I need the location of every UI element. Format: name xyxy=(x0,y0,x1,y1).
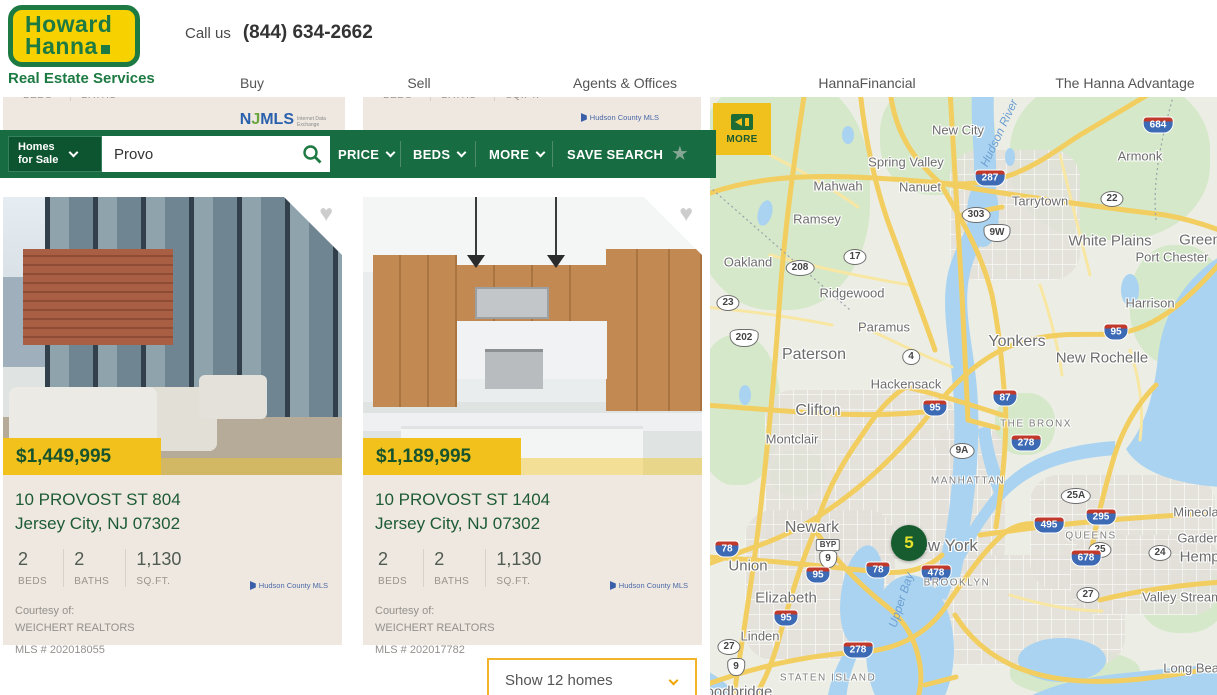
map-label-95: 95 xyxy=(806,568,829,583)
listing-address-line1[interactable]: 10 PROVOST ST 804 xyxy=(15,488,330,512)
njmls-logo: NJMLS Internet Data Exchange xyxy=(240,112,331,128)
price-badge: $1,189,995 xyxy=(363,438,521,475)
map-label-queens: QUEENS xyxy=(1065,531,1116,542)
map-label-staten-island: STATEN ISLAND xyxy=(780,673,876,684)
listing-address-line2[interactable]: Jersey City, NJ 07302 xyxy=(15,512,330,536)
divider xyxy=(475,141,476,167)
favorite-corner xyxy=(644,197,702,255)
map-label-24: 24 xyxy=(1148,545,1171,561)
logo-line2: Hanna xyxy=(25,36,135,58)
map-label-upper-bay: Upper Bay xyxy=(886,571,917,629)
map-label-paterson: Paterson xyxy=(782,346,846,364)
mls-number: MLS # 202018055 xyxy=(15,644,330,656)
nav-hanna-advantage[interactable]: The Hanna Advantage xyxy=(1055,75,1194,91)
partial-stat-label: BEDS xyxy=(373,97,430,101)
nav-buy[interactable]: Buy xyxy=(240,75,264,91)
map-label-union: Union xyxy=(728,558,767,575)
courtesy-label: Courtesy of: xyxy=(375,603,690,620)
map[interactable]: New CitySpring ValleyArmonk684MahwahNanu… xyxy=(710,95,1217,695)
filter-beds[interactable]: BEDS xyxy=(413,130,465,178)
map-label-202: 202 xyxy=(730,329,759,347)
map-label-armonk: Armonk xyxy=(1118,149,1163,164)
mls-flag-icon xyxy=(581,113,587,122)
map-label-port-chester: Port Chester xyxy=(1136,250,1209,265)
photo-shape xyxy=(373,255,457,407)
map-label-208: 208 xyxy=(786,260,815,276)
map-labels: New CitySpring ValleyArmonk684MahwahNanu… xyxy=(710,95,1217,695)
courtesy-name: WEICHERT REALTORS xyxy=(15,620,330,637)
show-homes-label: Show 12 homes xyxy=(505,672,613,689)
listing-info: 10 PROVOST ST 1404 Jersey City, NJ 07302… xyxy=(363,475,702,645)
partial-listing-card[interactable]: BEDS BATHS SQ.FT. Hudson County MLS xyxy=(363,97,701,130)
chevron-down-icon xyxy=(69,148,79,158)
map-label-hempstead: Hempstead xyxy=(1180,549,1217,566)
favorite-corner xyxy=(284,197,342,255)
map-label-9w: 9W xyxy=(984,224,1011,242)
listing-type-line2: for Sale xyxy=(18,154,58,167)
map-label-303: 303 xyxy=(962,207,991,223)
map-label-678: 678 xyxy=(1072,551,1101,566)
sqft-label: SQ.FT. xyxy=(496,576,541,587)
map-label-clifton: Clifton xyxy=(795,402,840,420)
chevron-down-icon xyxy=(457,147,467,157)
map-label-the-bronx: THE BRONX xyxy=(1000,419,1072,430)
sqft-value: 1,130 xyxy=(136,549,181,570)
map-label-brooklyn: BROOKLYN xyxy=(924,578,991,589)
favorite-heart-icon[interactable]: ♥ xyxy=(679,202,693,225)
map-label-9: 9 xyxy=(819,550,837,568)
photo-shape xyxy=(475,197,477,255)
map-label-4: 4 xyxy=(902,349,920,365)
listing-photo[interactable]: $1,189,995 ♥ xyxy=(363,197,702,475)
nav-hannafinancial[interactable]: HannaFinancial xyxy=(818,75,915,91)
beds-label: BEDS xyxy=(18,576,47,587)
map-label-manhattan: MANHATTAN xyxy=(931,476,1005,487)
chevron-down-icon xyxy=(669,676,679,686)
listing-info: 10 PROVOST ST 804 Jersey City, NJ 07302 … xyxy=(3,475,342,645)
photo-shape xyxy=(475,287,549,319)
partial-listing-card[interactable]: BEDS BATHS NJMLS Internet Data Exchange xyxy=(3,97,345,130)
partial-stat-label: BATHS xyxy=(430,97,494,101)
map-label-9: 9 xyxy=(727,658,745,676)
map-label-78: 78 xyxy=(715,542,738,557)
call-us: Call us (844) 634-2662 xyxy=(185,22,373,44)
map-label-23: 23 xyxy=(716,295,739,311)
map-label-295: 295 xyxy=(1087,510,1116,525)
map-label-garden-city: Garden City xyxy=(1177,531,1217,546)
beds-value: 2 xyxy=(18,549,47,570)
favorite-heart-icon[interactable]: ♥ xyxy=(319,202,333,225)
listing-card[interactable]: $1,449,995 ♥ 10 PROVOST ST 804 Jersey Ci… xyxy=(3,197,342,645)
map-label-linden: Linden xyxy=(740,629,779,644)
map-label-spring-valley: Spring Valley xyxy=(868,155,944,170)
map-label-newark: Newark xyxy=(785,519,839,537)
map-label-new-city: New City xyxy=(932,123,984,138)
courtesy-name: WEICHERT REALTORS xyxy=(375,620,690,637)
chevron-down-icon xyxy=(536,147,546,157)
hudson-county-mls-logo: Hudson County MLS xyxy=(610,581,688,590)
gallery-toggle-icon xyxy=(731,114,753,130)
nav-sell[interactable]: Sell xyxy=(407,75,430,91)
partial-stat-label: BATHS xyxy=(70,97,134,101)
map-label-nanuet: Nanuet xyxy=(899,180,941,195)
map-label-new-rochelle: New Rochelle xyxy=(1056,350,1149,367)
phone-number[interactable]: (844) 634-2662 xyxy=(243,22,373,44)
map-label-long-beach: Long Beach xyxy=(1163,661,1217,676)
filter-more[interactable]: MORE xyxy=(489,130,544,178)
baths-value: 2 xyxy=(434,549,469,570)
sqft-value: 1,130 xyxy=(496,549,541,570)
divider xyxy=(552,141,553,167)
courtesy-label: Courtesy of: xyxy=(15,603,330,620)
listing-type-select[interactable]: Homes for Sale xyxy=(8,136,102,172)
map-label-mahwah: Mahwah xyxy=(813,179,862,194)
howard-hanna-logo[interactable]: Howard Hanna Real Estate Services xyxy=(8,5,155,87)
baths-value: 2 xyxy=(74,549,109,570)
mls-number: MLS # 202017782 xyxy=(375,644,690,656)
map-label-95: 95 xyxy=(923,401,946,416)
star-icon: ★ xyxy=(672,144,688,164)
map-label-22: 22 xyxy=(1100,191,1123,207)
sqft-label: SQ.FT. xyxy=(136,576,181,587)
partial-stat-label: BEDS xyxy=(13,97,70,101)
search-bar: Homes for Sale PRICE BEDS MORE xyxy=(0,130,716,178)
call-us-label: Call us xyxy=(185,25,231,42)
map-label-27: 27 xyxy=(1076,587,1099,603)
map-label-paramus: Paramus xyxy=(858,320,910,335)
map-label-montclair: Montclair xyxy=(766,432,819,447)
map-label-ramsey: Ramsey xyxy=(793,212,841,227)
filter-price[interactable]: PRICE xyxy=(338,130,394,178)
logo-square-icon xyxy=(101,45,110,54)
listing-address-line2[interactable]: Jersey City, NJ 07302 xyxy=(375,512,690,536)
map-label-684: 684 xyxy=(1144,118,1173,133)
map-label-hackensack: Hackensack xyxy=(871,377,942,392)
map-label-17: 17 xyxy=(843,249,866,265)
map-label-87: 87 xyxy=(993,391,1016,406)
page: New CitySpring ValleyArmonk684MahwahNanu… xyxy=(0,0,1217,695)
njmls-sub-label: Internet Data Exchange xyxy=(297,116,331,128)
map-label-elizabeth: Elizabeth xyxy=(755,590,817,607)
map-label-287: 287 xyxy=(976,171,1005,186)
partial-card-stats: BEDS BATHS xyxy=(13,97,134,101)
map-label-278: 278 xyxy=(844,643,873,658)
map-label-95: 95 xyxy=(774,611,797,626)
map-label-95: 95 xyxy=(1104,325,1127,340)
partial-card-stats: BEDS BATHS SQ.FT. xyxy=(373,97,557,101)
logo-box: Howard Hanna xyxy=(8,5,140,67)
photo-shape xyxy=(199,375,267,419)
listing-photo[interactable]: $1,449,995 ♥ xyxy=(3,197,342,475)
map-label-greenwich: Greenwich xyxy=(1179,232,1217,249)
chevron-down-icon xyxy=(386,147,396,157)
map-label-tarrytown: Tarrytown xyxy=(1012,194,1068,209)
map-label-78: 78 xyxy=(866,563,889,578)
map-label-white-plains: White Plains xyxy=(1068,233,1151,250)
beds-label: BEDS xyxy=(378,576,407,587)
nav-agents-offices[interactable]: Agents & Offices xyxy=(573,75,677,91)
partial-stat-label: SQ.FT. xyxy=(494,97,557,101)
map-label-27: 27 xyxy=(717,639,740,655)
save-search-button[interactable]: SAVE SEARCH★ xyxy=(567,130,688,178)
map-label-mineola: Mineola xyxy=(1173,505,1217,520)
beds-value: 2 xyxy=(378,549,407,570)
mls-flag-icon xyxy=(610,581,616,590)
divider xyxy=(400,141,401,167)
map-cluster-marker[interactable]: 5 xyxy=(891,525,927,561)
map-label-oakland: Oakland xyxy=(724,255,772,270)
baths-label: BATHS xyxy=(74,576,109,587)
show-homes-select[interactable]: Show 12 homes xyxy=(487,658,697,695)
photo-shape xyxy=(606,249,702,411)
photo-shape xyxy=(23,249,173,345)
listing-card[interactable]: $1,189,995 ♥ 10 PROVOST ST 1404 Jersey C… xyxy=(363,197,702,645)
map-label-ridgewood: Ridgewood xyxy=(819,286,884,301)
search-input[interactable] xyxy=(102,136,330,172)
logo-tagline: Real Estate Services xyxy=(8,70,155,87)
map-label-yonkers: Yonkers xyxy=(988,333,1045,351)
baths-label: BATHS xyxy=(434,576,469,587)
map-label-25a: 25A xyxy=(1061,488,1091,504)
price-badge: $1,449,995 xyxy=(3,438,161,475)
map-more-label: MORE xyxy=(726,134,757,145)
map-label-harrison: Harrison xyxy=(1125,296,1174,311)
photo-shape xyxy=(555,197,557,255)
map-label-495: 495 xyxy=(1035,518,1064,533)
map-label-278: 278 xyxy=(1012,436,1041,451)
map-more-button[interactable]: MORE xyxy=(713,103,771,155)
search-field xyxy=(102,136,330,172)
listing-address-line1[interactable]: 10 PROVOST ST 1404 xyxy=(375,488,690,512)
photo-shape xyxy=(485,349,543,389)
map-label-woodbridge: Woodbridge xyxy=(710,684,772,695)
hudson-county-mls-logo: Hudson County MLS xyxy=(250,581,328,590)
map-label-9a: 9A xyxy=(950,443,975,459)
header: Howard Hanna Real Estate Services Call u… xyxy=(0,0,1217,97)
map-label-valley-stream: Valley Stream xyxy=(1142,590,1217,605)
listing-type-line1: Homes xyxy=(18,141,58,154)
mls-flag-icon xyxy=(250,581,256,590)
search-icon[interactable] xyxy=(302,144,323,170)
hudson-county-mls-logo: Hudson County MLS xyxy=(581,113,659,122)
